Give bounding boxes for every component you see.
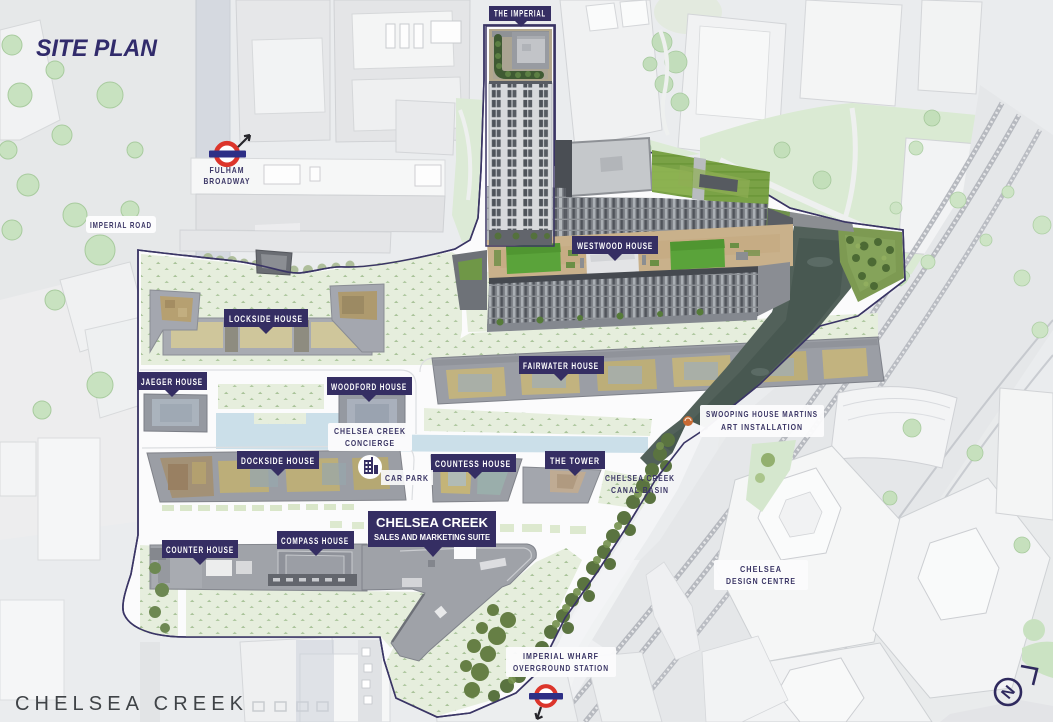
- svg-text:IMPERIAL ROAD: IMPERIAL ROAD: [90, 220, 152, 230]
- svg-text:SITE PLAN: SITE PLAN: [36, 35, 158, 62]
- svg-text:SALES AND MARKETING SUITE: SALES AND MARKETING SUITE: [374, 533, 491, 542]
- svg-text:FULHAM: FULHAM: [210, 165, 245, 175]
- svg-text:DESIGN CENTRE: DESIGN CENTRE: [726, 576, 796, 586]
- svg-text:CAR PARK: CAR PARK: [385, 473, 429, 483]
- svg-text:CONCIERGE: CONCIERGE: [345, 438, 395, 448]
- svg-text:DOCKSIDE HOUSE: DOCKSIDE HOUSE: [241, 456, 315, 466]
- svg-text:WOODFORD HOUSE: WOODFORD HOUSE: [331, 382, 407, 392]
- svg-text:SWOOPING HOUSE MARTINS: SWOOPING HOUSE MARTINS: [706, 409, 818, 419]
- svg-text:OVERGROUND STATION: OVERGROUND STATION: [513, 663, 609, 673]
- svg-text:COUNTER HOUSE: COUNTER HOUSE: [166, 545, 234, 555]
- svg-text:CHELSEA CREEK: CHELSEA CREEK: [376, 516, 488, 530]
- svg-text:BROADWAY: BROADWAY: [204, 176, 251, 186]
- svg-text:CHELSEA: CHELSEA: [740, 564, 782, 574]
- svg-text:COMPASS HOUSE: COMPASS HOUSE: [281, 536, 349, 546]
- svg-text:ART INSTALLATION: ART INSTALLATION: [721, 422, 803, 432]
- svg-text:LOCKSIDE HOUSE: LOCKSIDE HOUSE: [229, 314, 303, 324]
- svg-text:CANAL BASIN: CANAL BASIN: [611, 485, 669, 495]
- svg-text:FAIRWATER HOUSE: FAIRWATER HOUSE: [523, 361, 599, 371]
- svg-text:CHELSEA CREEK: CHELSEA CREEK: [605, 473, 675, 483]
- svg-text:THE IMPERIAL: THE IMPERIAL: [494, 9, 546, 19]
- svg-text:JAEGER HOUSE: JAEGER HOUSE: [141, 377, 203, 387]
- svg-text:CHELSEA CREEK: CHELSEA CREEK: [334, 426, 406, 436]
- svg-text:WESTWOOD HOUSE: WESTWOOD HOUSE: [577, 241, 653, 251]
- svg-text:THE TOWER: THE TOWER: [550, 456, 600, 466]
- svg-text:COUNTESS HOUSE: COUNTESS HOUSE: [435, 459, 511, 469]
- svg-text:IMPERIAL WHARF: IMPERIAL WHARF: [523, 651, 599, 661]
